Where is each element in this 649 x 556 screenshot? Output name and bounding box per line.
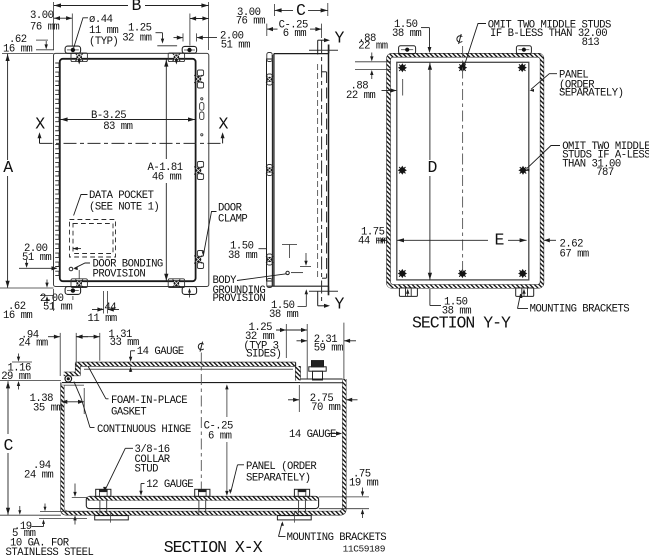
svg-text:32 mm: 32 mm (122, 33, 151, 45)
svg-text:GASKET: GASKET (111, 406, 146, 418)
svg-text:STAINLESS STEEL: STAINLESS STEEL (6, 547, 94, 556)
svg-text:C: C (296, 1, 306, 20)
svg-text:51 mm: 51 mm (43, 301, 72, 313)
svg-text:70 mm: 70 mm (311, 402, 340, 414)
svg-text:STUD: STUD (135, 463, 159, 475)
svg-text:11C59189: 11C59189 (343, 544, 386, 555)
svg-text:SECTION Y-Y: SECTION Y-Y (412, 314, 511, 333)
svg-text:A: A (3, 158, 13, 177)
svg-text:DATA POCKET: DATA POCKET (89, 190, 154, 202)
svg-text:(TYP): (TYP) (89, 36, 118, 48)
svg-text:(SEE NOTE 1): (SEE NOTE 1) (89, 202, 159, 214)
svg-text:44 mm: 44 mm (358, 236, 387, 248)
svg-text:11 mm: 11 mm (88, 313, 117, 325)
svg-text:19 mm: 19 mm (349, 477, 378, 489)
svg-text:SEPARATELY): SEPARATELY) (559, 88, 623, 100)
svg-text:SEPARATELY): SEPARATELY) (246, 473, 310, 485)
svg-text:SECTION X-X: SECTION X-X (164, 538, 263, 556)
svg-text:Y: Y (335, 294, 345, 313)
svg-text:787: 787 (596, 167, 614, 179)
svg-text:38 mm: 38 mm (228, 250, 257, 262)
svg-text:24 mm: 24 mm (19, 337, 48, 349)
svg-text:FOAM-IN-PLACE: FOAM-IN-PLACE (111, 395, 187, 407)
svg-text:PROVISION: PROVISION (213, 293, 266, 305)
svg-text:51 mm: 51 mm (221, 40, 250, 52)
svg-text:6 mm: 6 mm (283, 28, 307, 40)
svg-text:59 mm: 59 mm (314, 343, 343, 355)
svg-text:PANEL (ORDER: PANEL (ORDER (246, 461, 317, 473)
svg-text:X: X (35, 115, 45, 134)
svg-text:83 mm: 83 mm (103, 121, 132, 133)
svg-text:D: D (428, 158, 438, 177)
svg-text:22 mm: 22 mm (358, 41, 387, 53)
svg-text:76 mm: 76 mm (236, 15, 265, 27)
svg-text:C: C (4, 436, 14, 455)
svg-text:22 mm: 22 mm (346, 90, 375, 102)
svg-text:16 mm: 16 mm (3, 44, 32, 56)
svg-text:46 mm: 46 mm (152, 171, 181, 183)
svg-text:B-3.25: B-3.25 (91, 110, 126, 122)
svg-text:3.00: 3.00 (30, 10, 54, 22)
svg-text:33 mm: 33 mm (110, 337, 139, 349)
svg-text:X: X (219, 115, 229, 134)
svg-text:Y: Y (335, 28, 345, 47)
svg-text:CONTINUOUS HINGE: CONTINUOUS HINGE (97, 424, 191, 436)
svg-text:12 GAUGE: 12 GAUGE (146, 479, 193, 491)
svg-text:29 mm: 29 mm (1, 371, 30, 383)
svg-text:813: 813 (582, 37, 600, 49)
svg-text:38 mm: 38 mm (269, 309, 298, 321)
svg-text:E: E (495, 231, 505, 250)
svg-text:SIDES): SIDES) (246, 349, 281, 361)
svg-text:16 mm: 16 mm (3, 310, 32, 322)
svg-text:14 GAUGE: 14 GAUGE (289, 429, 336, 441)
svg-text:67 mm: 67 mm (560, 248, 589, 260)
svg-text:38 mm: 38 mm (392, 28, 421, 40)
svg-text:35 mm: 35 mm (33, 402, 62, 414)
svg-text:CLAMP: CLAMP (218, 214, 247, 226)
svg-text:MOUNTING BRACKETS: MOUNTING BRACKETS (530, 304, 630, 316)
svg-text:6 mm: 6 mm (208, 431, 232, 443)
svg-text:76 mm: 76 mm (30, 21, 59, 33)
svg-text:B: B (132, 0, 142, 15)
svg-text:24 mm: 24 mm (24, 469, 53, 481)
svg-text:PROVISION: PROVISION (93, 269, 146, 281)
svg-text:MOUNTING BRACKETS: MOUNTING BRACKETS (287, 532, 387, 544)
svg-text:14 GAUGE: 14 GAUGE (137, 346, 184, 358)
